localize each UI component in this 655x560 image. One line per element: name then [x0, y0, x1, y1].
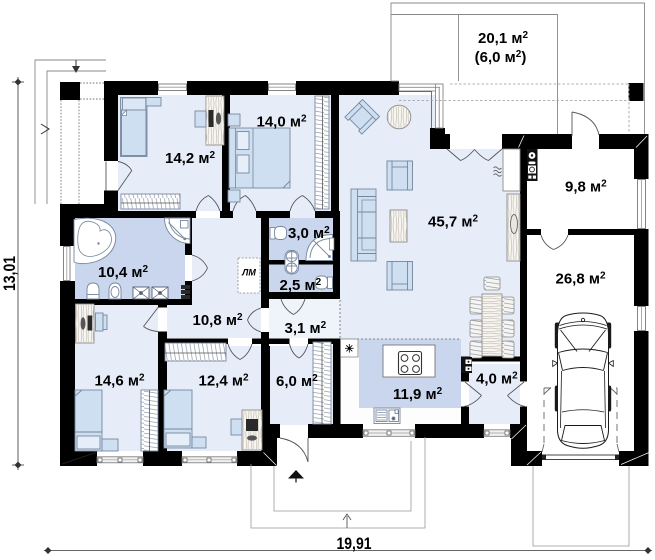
svg-text:12,4 м2: 12,4 м2: [199, 373, 249, 390]
svg-text:26,8 м2: 26,8 м2: [556, 271, 606, 288]
svg-text:14,2 м2: 14,2 м2: [165, 150, 215, 167]
svg-text:3,1 м2: 3,1 м2: [285, 320, 327, 337]
svg-text:14,0 м2: 14,0 м2: [257, 114, 307, 131]
svg-text:ЛМ: ЛМ: [241, 268, 256, 278]
svg-text:2,5 м2: 2,5 м2: [280, 277, 322, 294]
svg-text:13,01: 13,01: [0, 256, 19, 291]
svg-text:19,91: 19,91: [337, 534, 372, 553]
svg-text:20,1 м2: 20,1 м2: [478, 30, 528, 47]
svg-text:6,0 м2: 6,0 м2: [276, 373, 318, 390]
svg-text:14,6 м2: 14,6 м2: [95, 373, 145, 390]
svg-text:3,0 м2: 3,0 м2: [288, 225, 330, 242]
svg-text:10,8 м2: 10,8 м2: [193, 312, 243, 329]
svg-text:9,8 м2: 9,8 м2: [565, 179, 607, 196]
svg-text:4,0 м2: 4,0 м2: [476, 371, 518, 388]
svg-text:11,9 м2: 11,9 м2: [393, 386, 443, 403]
svg-text:10,4 м2: 10,4 м2: [98, 264, 148, 281]
svg-text:45,7 м2: 45,7 м2: [428, 213, 478, 230]
